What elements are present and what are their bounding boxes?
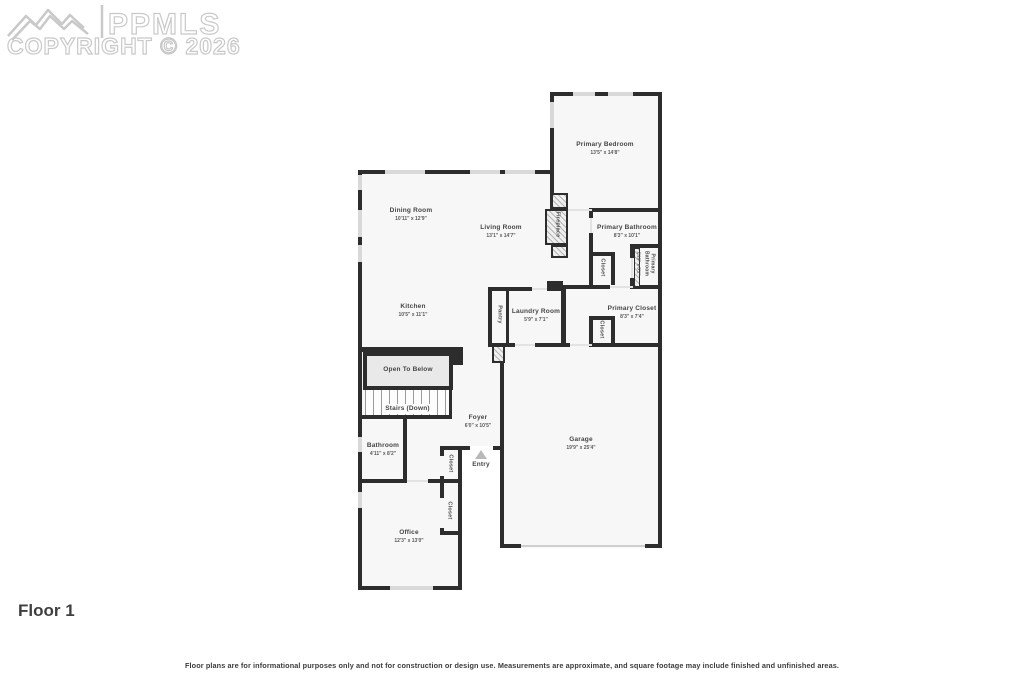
room-dims: 8'3" x 10'1" (587, 233, 667, 239)
wall (589, 233, 593, 287)
watermark-copyright: COPYRIGHT © 2026 (7, 33, 241, 60)
window (385, 170, 425, 174)
room-label-closet-office: Closet (446, 490, 453, 530)
disclaimer-text: Floor plans are for informational purpos… (0, 661, 1024, 670)
room-name: Office (379, 529, 439, 537)
wall (550, 92, 554, 102)
wall (363, 352, 453, 356)
wall (363, 386, 453, 390)
room-name: Closet (599, 247, 606, 287)
room-label-stairs: Stairs (Down) (365, 396, 450, 416)
room-name: Entry (461, 461, 501, 469)
room-name: Closet (598, 309, 605, 349)
room-label-garage: Garage 19'9" x 25'4" (551, 436, 611, 451)
watermark: PPMLS COPYRIGHT © 2026 (0, 0, 260, 70)
wall (440, 446, 470, 450)
room-name: Foyer (448, 414, 508, 422)
room-name: Laundry Room (506, 308, 566, 316)
room-name: Garage (551, 436, 611, 444)
wall (550, 92, 662, 96)
wall (440, 476, 444, 498)
wall (488, 287, 532, 291)
room-label-pantry: Pantry (496, 294, 503, 334)
entry-direction-icon (475, 450, 487, 459)
floor-title: Floor 1 (18, 601, 75, 621)
wall (488, 287, 492, 347)
garage-door-line (521, 545, 645, 547)
floor-plan-page: { "watermark": { "brand": "PPMLS", "copy… (0, 0, 1024, 682)
room-name: Closet (446, 490, 453, 530)
room-label-closet-primary-closet: Closet (598, 309, 605, 349)
wall (358, 508, 362, 590)
mechanical-hatch (492, 345, 505, 363)
wall (358, 190, 362, 210)
window (390, 586, 433, 590)
room-label-bathroom: Bathroom 4'11" x 8'2" (353, 442, 413, 457)
room-name: Primary Bedroom (545, 141, 665, 149)
wall (500, 347, 504, 548)
room-name: Dining Room (371, 207, 451, 215)
room-label-closet-entry: Closet (447, 443, 454, 483)
room-label-office: Office 12'3" x 13'0" (379, 529, 439, 544)
room-label-kitchen: Kitchen 10'5" x 11'1" (373, 303, 453, 318)
room-label-primary-bedroom: Primary Bedroom 13'5" x 14'8" (545, 141, 665, 156)
window (470, 170, 500, 174)
room-label-living-room: Living Room 13'1" x 14'7" (461, 224, 541, 239)
room-dims: 13'5" x 14'8" (545, 150, 665, 156)
room-label-open-to-below: Open To Below (367, 366, 449, 374)
door-opening (407, 480, 428, 482)
room-name: Kitchen (373, 303, 453, 311)
room-label-primary-bathroom: Primary Bathroom 8'3" x 10'1" (587, 224, 667, 239)
wall (611, 252, 615, 285)
door-opening (570, 344, 592, 346)
room-name: Pantry (496, 294, 503, 334)
window (358, 492, 362, 508)
room-name: Primary Bathroom (643, 242, 656, 286)
room-label-entry: Entry (461, 461, 501, 469)
room-name: Closet (447, 443, 454, 483)
wall (440, 528, 444, 535)
window (358, 210, 362, 237)
window (573, 92, 595, 96)
wall (358, 479, 407, 483)
wall (358, 237, 362, 245)
room-dims: 4'11" x 8'2" (353, 451, 413, 457)
wall (428, 479, 462, 483)
door-opening (566, 209, 592, 211)
room-name: Primary Bathroom (587, 224, 667, 232)
wall (592, 208, 662, 212)
room-dims: 10'5" x 11'1" (373, 312, 453, 318)
wall (589, 316, 593, 347)
room-dims: 5'9" x 7'1" (506, 317, 566, 323)
wall (358, 452, 362, 492)
door-opening (610, 286, 633, 288)
window (358, 175, 362, 190)
room-label-fireplace: Fireplace (554, 199, 561, 249)
room-dims: 6'0" x 10'5" (448, 423, 508, 429)
wall (611, 316, 615, 347)
room-name: Living Room (461, 224, 541, 232)
wall (358, 262, 362, 352)
room-dims: 10'11" x 12'9" (371, 216, 451, 222)
wall (452, 355, 460, 365)
room-name: Open To Below (367, 366, 449, 374)
door-opening (515, 344, 535, 346)
door-opening (631, 258, 633, 278)
room-dims: 12'3" x 13'0" (379, 538, 439, 544)
room-label-dining-room: Dining Room 10'11" x 12'9" (371, 207, 451, 222)
window (608, 92, 633, 96)
room-dims: 2'10" x 5'1" (636, 242, 642, 286)
room-label-primary-bathroom-wc: Primary Bathroom 2'10" x 5'1" (636, 242, 655, 286)
room-name: Stairs (Down) (382, 404, 433, 414)
window (505, 170, 535, 174)
room-dims: 13'1" x 14'7" (461, 233, 541, 239)
wall (358, 352, 362, 437)
room-label-closet-primary-bath: Closet (599, 247, 606, 287)
room-label-foyer: Foyer 6'0" x 10'5" (448, 414, 508, 429)
room-name: Bathroom (353, 442, 413, 450)
room-name: Fireplace (554, 199, 561, 249)
window (550, 102, 554, 128)
room-dims: 19'9" x 25'4" (551, 445, 611, 451)
door-opening (532, 288, 547, 290)
window (358, 245, 362, 262)
room-label-laundry-room: Laundry Room 5'9" x 7'1" (506, 308, 566, 323)
wall (440, 446, 444, 456)
